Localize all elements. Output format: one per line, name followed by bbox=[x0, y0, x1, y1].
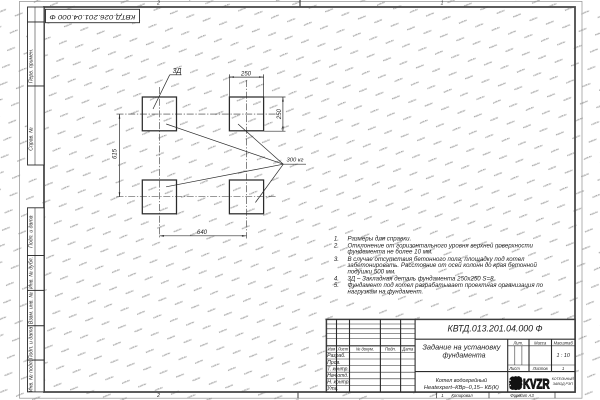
svg-text:КОТЕЛЬНЫЙ: КОТЕЛЬНЫЙ bbox=[552, 377, 575, 381]
svg-text:615: 615 bbox=[113, 148, 119, 159]
svg-text:640: 640 bbox=[197, 230, 208, 236]
svg-text:№ докум.: № докум. bbox=[356, 346, 374, 351]
svg-text:Лит.: Лит. bbox=[513, 340, 524, 345]
svg-text:Н. контр.: Н. контр. bbox=[327, 380, 350, 386]
svg-text:Взам. инв. №: Взам. инв. № bbox=[28, 292, 34, 324]
svg-text:250: 250 bbox=[240, 71, 252, 77]
svg-text:1: 1 bbox=[441, 1, 444, 7]
svg-text:Инв. № подл.: Инв. № подл. bbox=[28, 360, 34, 392]
svg-text:Нач.отд.: Нач.отд. bbox=[327, 373, 348, 379]
svg-text:Масса: Масса bbox=[534, 340, 547, 345]
svg-text:3Д: 3Д bbox=[173, 68, 182, 75]
svg-text:Лист: Лист bbox=[508, 366, 520, 371]
svg-text:Разраб.: Разраб. bbox=[327, 353, 345, 359]
svg-text:Справ. №: Справ. № bbox=[28, 127, 34, 151]
svg-text:Котел водогрейный: Котел водогрейный bbox=[436, 377, 487, 384]
svg-text:Перв. примен.: Перв. примен. bbox=[28, 49, 34, 83]
svg-text:Копировал: Копировал bbox=[451, 393, 473, 398]
svg-text:1 : 10: 1 : 10 bbox=[556, 353, 570, 359]
svg-text:Подп. и дата: Подп. и дата bbox=[28, 327, 34, 360]
svg-text:2: 2 bbox=[156, 393, 160, 399]
svg-text:Т. контр.: Т. контр. bbox=[327, 366, 349, 372]
svg-text:1: 1 bbox=[562, 366, 564, 371]
svg-text:фундамента не более 10 мм.: фундамента не более 10 мм. bbox=[348, 249, 433, 256]
svg-text:Пров.: Пров. bbox=[327, 360, 340, 366]
svg-text:2: 2 bbox=[156, 1, 160, 7]
svg-text:5.: 5. bbox=[334, 282, 339, 289]
svg-text:Листов: Листов bbox=[532, 366, 549, 371]
svg-text:Подп.: Подп. bbox=[385, 346, 396, 351]
svg-text:2.: 2. bbox=[333, 242, 339, 249]
svg-text:Масштаб: Масштаб bbox=[554, 340, 574, 345]
svg-text:Подп. и дата: Подп. и дата bbox=[28, 215, 34, 248]
svg-text:Дата: Дата bbox=[401, 346, 414, 351]
svg-text:Задание на установку: Задание на установку bbox=[422, 344, 501, 352]
svg-text:нагрузкам на фундамент.: нагрузкам на фундамент. bbox=[348, 288, 424, 295]
svg-text:фундамента: фундамента bbox=[443, 352, 486, 360]
svg-text:KVZR: KVZR bbox=[523, 376, 550, 391]
svg-text:Лист: Лист bbox=[337, 346, 349, 351]
svg-text:ЗАВОД РЭП: ЗАВОД РЭП bbox=[553, 382, 574, 386]
svg-text:Формат А3: Формат А3 bbox=[510, 393, 534, 398]
svg-text:300 кг: 300 кг bbox=[287, 157, 304, 163]
svg-text:Heatexpert–КВр–0,15– КБ(К): Heatexpert–КВр–0,15– КБ(К) bbox=[424, 385, 499, 391]
svg-text:Утв.: Утв. bbox=[327, 386, 338, 392]
svg-text:Изм: Изм bbox=[328, 346, 336, 351]
svg-text:КВТД.026.201.04.000 Ф: КВТД.026.201.04.000 Ф bbox=[49, 13, 135, 20]
svg-text:3.: 3. bbox=[334, 256, 339, 263]
svg-text:Инв. № дубл.: Инв. № дубл. bbox=[28, 257, 34, 289]
svg-text:250: 250 bbox=[277, 108, 283, 120]
svg-text:КВТД.013.201.04.000 Ф: КВТД.013.201.04.000 Ф bbox=[448, 324, 543, 334]
